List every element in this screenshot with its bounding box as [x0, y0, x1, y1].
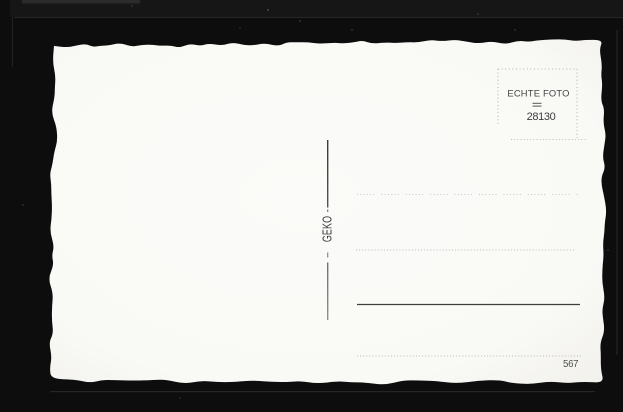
svg-text:567: 567 — [563, 359, 578, 370]
svg-text:GEKO: GEKO — [321, 216, 335, 242]
svg-text:28130: 28130 — [527, 111, 556, 123]
svg-text:ECHTE FOTO: ECHTE FOTO — [507, 88, 569, 99]
